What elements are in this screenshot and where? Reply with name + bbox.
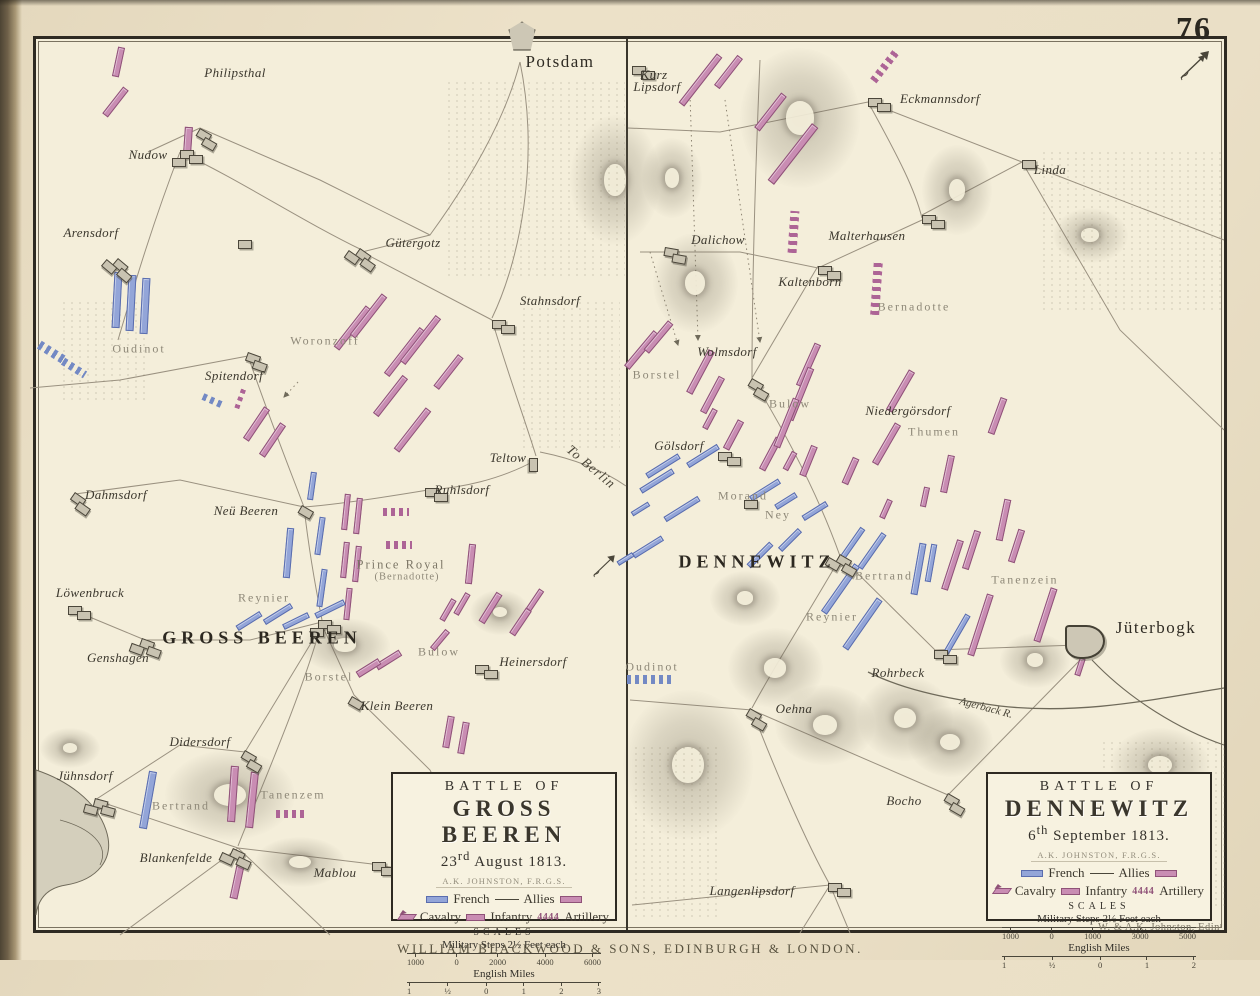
legend-heading: BATTLE OF [994, 779, 1204, 795]
infantry-label: Infantry [1085, 883, 1127, 899]
miles-scale-bar: 1½012 [1002, 956, 1196, 970]
artillery-label: Artillery [564, 909, 609, 925]
cartographer-credit: A.K. JOHNSTON, F.R.G.S. [436, 876, 571, 888]
miles-scale-bar: 1½0123 [407, 982, 601, 996]
allies-label: Allies [1119, 865, 1150, 881]
movement-dotted-paths [284, 95, 760, 397]
infantry-symbol [1061, 888, 1080, 895]
allies-swatch [1155, 870, 1177, 877]
engraver-imprint: W. & A.K. Johnston, Edinʳ [1098, 922, 1223, 933]
allies-line-swatch [495, 899, 519, 900]
page-number: 76 [1176, 10, 1212, 47]
book-binding-edge [0, 0, 22, 960]
scales-heading: SCALES [994, 901, 1204, 912]
scales-heading: SCALES [399, 927, 609, 938]
artillery-label: Artillery [1159, 883, 1204, 899]
cavalry-label: Cavalry [1015, 883, 1056, 899]
infantry-label: Infantry [490, 909, 532, 925]
battle-title: GROSS BEEREN [399, 796, 609, 848]
allies-label: Allies [524, 891, 555, 907]
cavalry-label: Cavalry [420, 909, 461, 925]
legend-dennewitz: BATTLE OF DENNEWITZ 6th September 1813. … [986, 772, 1212, 921]
artillery-symbol: 4444 [1132, 886, 1154, 897]
legend-sides-row: French Allies [994, 865, 1204, 881]
allies-swatch [560, 896, 582, 903]
legend-arms-row: Cavalry Infantry 4444 Artillery [994, 883, 1204, 899]
french-swatch [426, 896, 448, 903]
publisher-caption: WILLIAM BLACKWOOD & SONS, EDINBURGH & LO… [0, 941, 1260, 957]
french-label: French [1048, 865, 1084, 881]
battle-date: 6th September 1813. [994, 823, 1204, 845]
north-arrow-icon [1176, 44, 1216, 84]
legend-heading: BATTLE OF [399, 779, 609, 795]
legend-sides-row: French Allies [399, 891, 609, 907]
french-label: French [453, 891, 489, 907]
page-top-shadow [0, 0, 1260, 6]
atlas-page: { "page": { "number": "76", "publisher_c… [0, 0, 1260, 960]
battle-title: DENNEWITZ [994, 796, 1204, 822]
cavalry-symbol [992, 888, 1012, 894]
artillery-symbol: 4444 [537, 912, 559, 923]
north-arrow-icon [590, 550, 620, 580]
legend-arms-row: Cavalry Infantry 4444 Artillery [399, 909, 609, 925]
french-swatch [1021, 870, 1043, 877]
cartographer-credit: A.K. JOHNSTON, F.R.G.S. [1031, 850, 1166, 862]
miles-scale-label: English Miles [399, 968, 609, 980]
allies-line-swatch [1090, 873, 1114, 874]
cavalry-symbol [397, 914, 417, 920]
legend-gross-beeren: BATTLE OF GROSS BEEREN 23rd August 1813.… [391, 772, 617, 921]
infantry-symbol [466, 914, 485, 921]
battle-date: 23rd August 1813. [399, 849, 609, 871]
